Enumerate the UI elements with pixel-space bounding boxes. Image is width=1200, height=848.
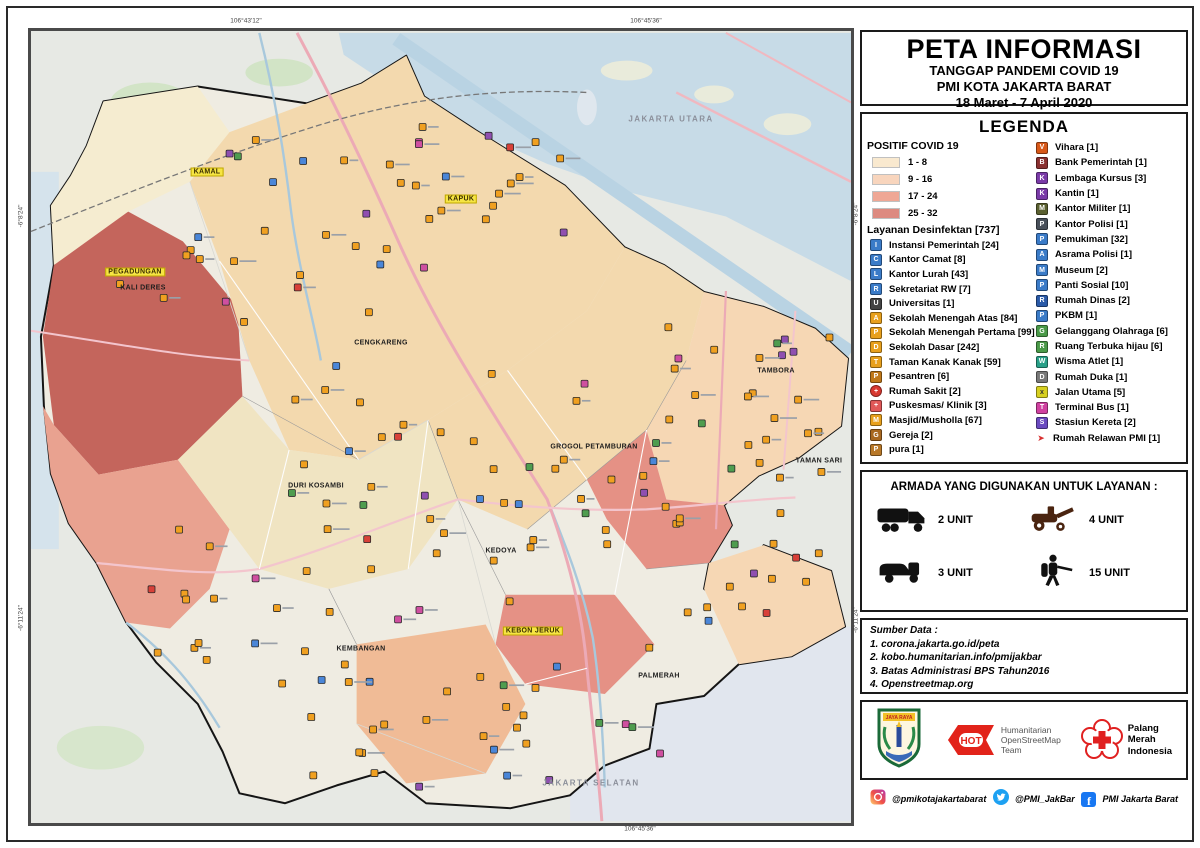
- poi-marker: [532, 684, 539, 691]
- facility-icon: C: [870, 254, 882, 266]
- covid-class-swatch: [872, 208, 900, 219]
- legend-item: PSekolah Menengah Pertama [99]: [867, 326, 1033, 341]
- poi-marker: [530, 537, 537, 544]
- poi-marker: [770, 540, 777, 547]
- poi-marker: [671, 365, 678, 372]
- poi-marker: [608, 476, 615, 483]
- legend-item: RRumah Dinas [2]: [1033, 293, 1181, 308]
- poi-label-placeholder: [566, 158, 581, 160]
- map-district-label: JAKARTA UTARA: [628, 115, 713, 124]
- twitter-item: @PMI_JakBar: [993, 789, 1075, 810]
- legend: LEGENDA POSITIF COVID 19 1 - 89 - 1617 -…: [860, 112, 1188, 464]
- covid-class-range: 17 - 24: [908, 191, 938, 202]
- poi-marker: [395, 433, 402, 440]
- poi-marker: [532, 139, 539, 146]
- map-district-label: PEGADUNGAN: [105, 268, 165, 277]
- facility-icon: P: [870, 327, 882, 339]
- svg-text:JAYA RAYA: JAYA RAYA: [886, 715, 913, 721]
- facility-label: Lembaga Kursus [3]: [1055, 173, 1146, 184]
- facility-icon: B: [1036, 157, 1048, 169]
- poi-label-placeholder: [516, 183, 533, 185]
- poi-marker: [490, 202, 497, 209]
- poi-marker: [206, 543, 213, 550]
- poi-label-placeholder: [331, 234, 346, 236]
- legend-item: DSekolah Dasar [242]: [867, 340, 1033, 355]
- poi-marker: [818, 468, 825, 475]
- poi-marker: [368, 566, 375, 573]
- poi-marker: [805, 430, 812, 437]
- poi-marker: [516, 174, 523, 181]
- poi-marker: [294, 284, 301, 291]
- poi-marker: [211, 595, 218, 602]
- poi-marker: [641, 489, 648, 496]
- facility-label: Wisma Atlet [1]: [1055, 356, 1123, 367]
- covid-class-swatch: [872, 174, 900, 185]
- facility-icon: T: [1036, 402, 1048, 414]
- facility-icon: x: [1036, 386, 1048, 398]
- poi-marker: [273, 605, 280, 612]
- poi-marker: [310, 772, 317, 779]
- poi-label-placeholder: [350, 159, 359, 161]
- facility-label: Sekretariat RW [7]: [889, 284, 971, 295]
- poi-marker: [491, 746, 498, 753]
- poi-marker: [490, 557, 497, 564]
- facility-label: Terminal Bus [1]: [1055, 402, 1129, 413]
- poi-label-placeholder: [780, 417, 797, 419]
- poi-marker: [437, 429, 444, 436]
- facebook-icon: f: [1081, 792, 1096, 807]
- armada-item-tank-truck: 2 UNIT: [876, 501, 1027, 538]
- legend-item: DRumah Duka [1]: [1033, 369, 1181, 384]
- facility-label: Panti Sosial [10]: [1055, 280, 1128, 291]
- facility-label: Sekolah Menengah Pertama [99]: [889, 327, 1035, 338]
- legend-item: CKantor Camat [8]: [867, 253, 1033, 268]
- poi-marker: [803, 578, 810, 585]
- poi-label-placeholder: [355, 450, 366, 452]
- facility-icon: ➤: [1036, 433, 1046, 443]
- legend-item: RRuang Terbuka hijau [6]: [1033, 339, 1181, 354]
- poi-label-placeholder: [404, 618, 417, 620]
- poi-marker: [477, 673, 484, 680]
- facility-label: Kantor Lurah [43]: [889, 269, 968, 280]
- poi-marker: [726, 583, 733, 590]
- facility-label: Kantin [1]: [1055, 188, 1099, 199]
- poi-label-placeholder: [685, 517, 700, 519]
- poi-label-placeholder: [377, 486, 388, 488]
- poi-marker: [341, 157, 348, 164]
- facility-icon: R: [1036, 341, 1048, 353]
- poi-marker: [352, 243, 359, 250]
- poi-marker: [234, 153, 241, 160]
- poi-label-placeholder: [659, 460, 670, 462]
- legend-item: SStasiun Kereta [2]: [1033, 415, 1181, 430]
- island: [694, 85, 734, 103]
- legend-item: RSekretariat RW [7]: [867, 282, 1033, 297]
- poi-marker: [629, 724, 636, 731]
- poi-marker: [252, 137, 259, 144]
- armada-item-spray-vehicle: 4 UNIT: [1027, 501, 1178, 538]
- poi-marker: [692, 391, 699, 398]
- instagram-handle: @pmikotajakartabarat: [892, 794, 986, 804]
- data-source-line: 3. Batas Administrasi BPS Tahun2016: [870, 665, 1178, 679]
- facility-label: Universitas [1]: [889, 298, 954, 309]
- covid-class-swatch: [872, 157, 900, 168]
- legend-item: PKantor Polisi [1]: [1033, 216, 1181, 231]
- poi-marker: [704, 604, 711, 611]
- map-district-label: DURI KOSAMBI: [288, 483, 344, 490]
- poi-marker: [241, 318, 248, 325]
- poi-marker: [490, 466, 497, 473]
- poi-label-placeholder: [680, 368, 691, 370]
- poi-marker: [222, 298, 229, 305]
- poi-label-placeholder: [785, 477, 793, 479]
- legend-item: VVihara [1]: [1033, 140, 1181, 155]
- facility-icon: K: [1036, 188, 1048, 200]
- pmi-logo: PalangMerahIndonesia: [1081, 719, 1172, 761]
- poi-marker: [383, 246, 390, 253]
- legend-item: +Rumah Sakit [2]: [867, 384, 1033, 399]
- poi-marker: [646, 644, 653, 651]
- poi-label-placeholder: [169, 297, 180, 299]
- poi-marker: [552, 465, 559, 472]
- map-district-label: GROGOL PETAMBURAN: [550, 444, 637, 451]
- graticule-label: 106°45'36": [630, 18, 661, 25]
- armada-section: ARMADA YANG DIGUNAKAN UNTUK LAYANAN : 2 …: [860, 470, 1188, 612]
- facility-label: Instansi Pemerintah [24]: [889, 240, 999, 251]
- poi-marker: [195, 639, 202, 646]
- poi-marker: [356, 749, 363, 756]
- facility-label: Kantor Camat [8]: [889, 254, 966, 265]
- poi-marker: [776, 474, 783, 481]
- poi-marker: [318, 677, 325, 684]
- island: [601, 61, 653, 81]
- poi-marker: [793, 554, 800, 561]
- poi-marker: [368, 483, 375, 490]
- poi-marker: [640, 472, 647, 479]
- poi-label-placeholder: [827, 471, 841, 473]
- covid-swatches: 1 - 89 - 1617 - 2425 - 32: [867, 154, 1033, 222]
- poi-marker: [485, 132, 492, 139]
- poi-marker: [154, 649, 161, 656]
- poi-marker: [226, 150, 233, 157]
- poi-marker: [346, 448, 353, 455]
- poi-marker: [684, 609, 691, 616]
- map-district-label: KEMBANGAN: [337, 646, 386, 653]
- hot-logo-text: HOT: [960, 736, 981, 747]
- poi-marker: [441, 530, 448, 537]
- covid-map: [31, 31, 851, 823]
- poi-marker: [288, 489, 295, 496]
- title-block: PETA INFORMASI TANGGAP PANDEMI COVID 19 …: [860, 30, 1188, 106]
- poi-marker: [279, 680, 286, 687]
- facility-icon: A: [1036, 249, 1048, 261]
- twitter-handle: @PMI_JakBar: [1015, 794, 1075, 804]
- poi-label-placeholder: [331, 389, 345, 391]
- poi-marker: [297, 272, 304, 279]
- poi-marker: [386, 161, 393, 168]
- poi-marker: [231, 258, 238, 265]
- poi-marker: [774, 340, 781, 347]
- poi-marker: [423, 716, 430, 723]
- poi-label-placeholder: [204, 236, 215, 238]
- legend-item: ➤Rumah Relawan PMI [1]: [1033, 431, 1181, 446]
- poi-label-placeholder: [379, 729, 394, 731]
- legend-item: TTaman Kanak Kanak [59]: [867, 355, 1033, 370]
- legend-item: PPanti Sosial [10]: [1033, 278, 1181, 293]
- poi-label-placeholder: [513, 775, 522, 777]
- legend-item: +Puskesmas/ Klinik [3]: [867, 399, 1033, 414]
- facebook-item: f PMI Jakarta Barat: [1081, 792, 1178, 807]
- facility-label: Masjid/Musholla [67]: [889, 415, 982, 426]
- poi-label-placeholder: [424, 143, 439, 145]
- jakarta-emblem-logo: JAYA RAYA: [876, 707, 922, 774]
- poi-label-placeholder: [499, 749, 514, 751]
- facility-label: Museum [2]: [1055, 265, 1108, 276]
- poi-marker: [360, 502, 367, 509]
- poi-marker: [731, 541, 738, 548]
- facility-icon: G: [870, 429, 882, 441]
- twitter-icon: [993, 789, 1009, 810]
- facility-label: Rumah Dinas [2]: [1055, 295, 1130, 306]
- poi-label-placeholder: [509, 684, 524, 686]
- poi-marker: [815, 428, 822, 435]
- poi-marker: [438, 207, 445, 214]
- poi-label-placeholder: [451, 176, 464, 178]
- poi-marker: [480, 733, 487, 740]
- poi-marker: [739, 603, 746, 610]
- legend-item: PPKBM [1]: [1033, 308, 1181, 323]
- facility-label: Taman Kanak Kanak [59]: [889, 357, 1001, 368]
- poi-marker: [364, 536, 371, 543]
- instagram-item: @pmikotajakartabarat: [870, 789, 986, 810]
- poi-marker: [270, 179, 277, 186]
- poi-label-placeholder: [661, 442, 671, 444]
- facility-icon: D: [1036, 371, 1048, 383]
- poi-marker: [444, 688, 451, 695]
- poi-label-placeholder: [215, 545, 227, 547]
- legend-item: LKantor Lurah [43]: [867, 267, 1033, 282]
- poi-label-placeholder: [301, 399, 313, 401]
- facility-label: Pesantren [6]: [889, 371, 949, 382]
- poi-marker: [622, 721, 629, 728]
- poi-marker: [795, 396, 802, 403]
- poi-label-placeholder: [261, 139, 274, 141]
- facility-label: Asrama Polisi [1]: [1055, 249, 1132, 260]
- poi-marker: [514, 724, 521, 731]
- info-panel: PETA INFORMASI TANGGAP PANDEMI COVID 19 …: [860, 16, 1188, 832]
- poi-label-placeholder: [436, 518, 446, 520]
- facility-label: Vihara [1]: [1055, 142, 1098, 153]
- poi-marker: [698, 420, 705, 427]
- armada-item-van-truck: 3 UNIT: [876, 554, 1027, 591]
- poi-marker: [578, 495, 585, 502]
- legend-item: MKantor Militer [1]: [1033, 201, 1181, 216]
- facility-label: Sekolah Menengah Atas [84]: [889, 313, 1017, 324]
- data-sources-list: 1. corona.jakarta.go.id/peta2. kobo.huma…: [870, 638, 1178, 692]
- facility-icon: P: [1036, 233, 1048, 245]
- facility-label: Sekolah Dasar [242]: [889, 342, 979, 353]
- greenspace: [245, 59, 313, 87]
- poi-marker: [653, 440, 660, 447]
- facility-icon: A: [870, 312, 882, 324]
- facility-icon: M: [870, 414, 882, 426]
- poi-marker: [506, 598, 513, 605]
- facility-icon: +: [870, 385, 882, 397]
- map-district-label: CENGKARENG: [354, 340, 408, 347]
- social-strip: @pmikotajakartabarat @PMI_JakBar f PMI J…: [860, 784, 1188, 814]
- facility-icon: M: [1036, 203, 1048, 215]
- poi-marker: [553, 663, 560, 670]
- poi-marker: [148, 586, 155, 593]
- logos-strip: JAYA RAYA HOT HumanitarianOpenStreetMapT…: [860, 700, 1188, 780]
- poi-marker: [604, 541, 611, 548]
- poi-marker: [421, 264, 428, 271]
- legend-item: UUniversitas [1]: [867, 296, 1033, 311]
- poi-marker: [676, 515, 683, 522]
- poi-marker: [397, 179, 404, 186]
- facility-icon: P: [870, 371, 882, 383]
- armada-count: 4 UNIT: [1089, 514, 1124, 526]
- facility-icon: M: [1036, 264, 1048, 276]
- covid-class-range: 25 - 32: [908, 208, 938, 219]
- poi-label-placeholder: [297, 492, 309, 494]
- legend-item: Ppura [1]: [867, 442, 1033, 457]
- poi-marker: [176, 526, 183, 533]
- desinfektan-heading: Layanan Desinfektan [737]: [867, 224, 1033, 236]
- legend-item: MMuseum [2]: [1033, 262, 1181, 277]
- poi-marker: [426, 215, 433, 222]
- poi-label-placeholder: [282, 607, 293, 609]
- map-district-label: TAMAN SARI: [796, 458, 842, 465]
- facility-label: Jalan Utama [5]: [1055, 387, 1125, 398]
- legend-item: TTerminal Bus [1]: [1033, 400, 1181, 415]
- poi-label-placeholder: [219, 598, 227, 600]
- poi-marker: [527, 544, 534, 551]
- facility-icon: P: [1036, 310, 1048, 322]
- poi-marker: [345, 679, 352, 686]
- poi-label-placeholder: [772, 439, 782, 441]
- poi-marker: [470, 438, 477, 445]
- van-truck-icon: [876, 554, 928, 591]
- poi-marker: [324, 526, 331, 533]
- poi-label-placeholder: [205, 258, 214, 260]
- poi-marker: [781, 336, 788, 343]
- map-district-label: KAMAL: [191, 168, 224, 177]
- poi-marker: [515, 501, 522, 508]
- covid-class-swatch: [872, 191, 900, 202]
- legend-item: MMasjid/Musholla [67]: [867, 413, 1033, 428]
- spray-vehicle-icon: [1027, 501, 1079, 538]
- poi-label-placeholder: [449, 532, 466, 534]
- facility-label: PKBM [1]: [1055, 310, 1097, 321]
- poi-label-placeholder: [783, 342, 792, 344]
- facility-icon: R: [1036, 295, 1048, 307]
- data-sources-heading: Sumber Data :: [870, 624, 1178, 638]
- hot-logo-label: HumanitarianOpenStreetMapTeam: [1001, 725, 1061, 756]
- poi-label-placeholder: [525, 176, 533, 178]
- poi-marker: [705, 617, 712, 624]
- facility-icon: +: [870, 400, 882, 412]
- poi-label-placeholder: [428, 126, 439, 128]
- poi-marker: [504, 772, 511, 779]
- facility-icon: S: [1036, 417, 1048, 429]
- instagram-icon: [870, 789, 886, 810]
- poi-label-placeholder: [425, 786, 435, 788]
- legend-item: PPesantren [6]: [867, 369, 1033, 384]
- poi-label-placeholder: [432, 719, 448, 721]
- poi-marker: [412, 182, 419, 189]
- poi-marker: [728, 465, 735, 472]
- poster-date-range: 18 Maret - 7 April 2020: [862, 95, 1186, 111]
- poi-marker: [666, 416, 673, 423]
- map-district-label: PALMERAH: [638, 673, 680, 680]
- legend-item: GGereja [2]: [867, 428, 1033, 443]
- poi-marker: [596, 719, 603, 726]
- poi-label-placeholder: [539, 539, 547, 541]
- facility-label: Ruang Terbuka hijau [6]: [1055, 341, 1163, 352]
- poi-marker: [427, 516, 434, 523]
- poi-marker: [323, 500, 330, 507]
- legend-item: BBank Pemerintah [1]: [1033, 155, 1181, 170]
- poi-label-placeholder: [582, 400, 591, 402]
- facility-icon: K: [1036, 172, 1048, 184]
- data-source-line: 4. Openstreetmap.org: [870, 678, 1178, 692]
- data-source-line: 2. kobo.humanitarian.info/pmijakbar: [870, 651, 1178, 665]
- poi-marker: [252, 640, 259, 647]
- poi-marker: [560, 456, 567, 463]
- poi-marker: [377, 261, 384, 268]
- poi-label-placeholder: [516, 146, 531, 148]
- poi-marker: [341, 661, 348, 668]
- graticule-label: -6°8'24": [18, 205, 25, 228]
- poi-marker: [744, 393, 751, 400]
- facility-icon: W: [1036, 356, 1048, 368]
- poi-marker: [495, 190, 502, 197]
- legend-item: IInstansi Pemerintah [24]: [867, 238, 1033, 253]
- legend-heading: LEGENDA: [862, 117, 1186, 137]
- covid-section-heading: POSITIF COVID 19: [867, 140, 1033, 152]
- facility-label: Puskesmas/ Klinik [3]: [889, 400, 987, 411]
- poi-label-placeholder: [504, 193, 520, 195]
- map-area: KAMALKAPUKPEGADUNGANKALI DERESCENGKARENG…: [16, 16, 862, 836]
- poi-marker: [507, 144, 514, 151]
- map-district-label: KEBON JERUK: [503, 627, 563, 636]
- poi-marker: [745, 441, 752, 448]
- poi-marker: [300, 158, 307, 165]
- covid-class-range: 1 - 8: [908, 157, 927, 168]
- poi-label-placeholder: [638, 726, 654, 728]
- graticule-label: 106°45'36": [624, 826, 655, 833]
- covid-class-range: 9 - 16: [908, 174, 932, 185]
- poi-marker: [421, 492, 428, 499]
- poi-label-placeholder: [368, 752, 385, 754]
- poster-subtitle-2: PMI KOTA JAKARTA BARAT: [862, 79, 1186, 95]
- poi-marker: [523, 740, 530, 747]
- facility-icon: U: [870, 298, 882, 310]
- poster: KAMALKAPUKPEGADUNGANKALI DERESCENGKARENG…: [6, 6, 1194, 842]
- poi-marker: [183, 596, 190, 603]
- facility-icon: I: [870, 239, 882, 251]
- poi-marker: [365, 309, 372, 316]
- poi-label-placeholder: [765, 357, 780, 359]
- poi-marker: [363, 210, 370, 217]
- poi-marker: [501, 499, 508, 506]
- facility-icon: D: [870, 341, 882, 353]
- poi-marker: [415, 141, 422, 148]
- poi-marker: [356, 399, 363, 406]
- poi-marker: [292, 396, 299, 403]
- poi-marker: [322, 387, 329, 394]
